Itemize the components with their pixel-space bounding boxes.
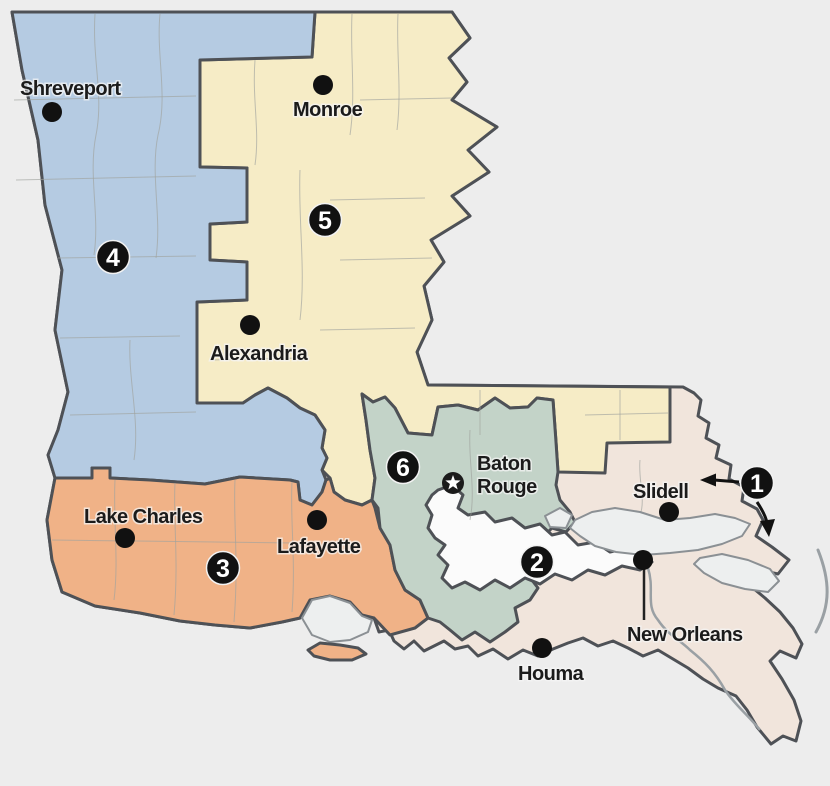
slidell-dot (659, 502, 679, 522)
district-1-arrow-left-line (714, 480, 739, 482)
houma-dot (532, 638, 552, 658)
lafayette-label: Lafayette (277, 536, 361, 558)
lake-charles-dot (115, 528, 135, 548)
shreveport-dot (42, 102, 62, 122)
new-orleans-dot (633, 550, 653, 570)
baton-rouge-label-line1: Baton (477, 453, 531, 475)
new-orleans-label: New Orleans (627, 624, 743, 646)
baton-rouge-label-line2: Rouge (477, 476, 537, 498)
alexandria-label: Alexandria (210, 343, 309, 365)
lafayette-dot (307, 510, 327, 530)
houma-label: Houma (518, 663, 585, 685)
svg-text:3: 3 (216, 555, 230, 583)
svg-text:6: 6 (396, 454, 410, 482)
svg-text:1: 1 (750, 470, 764, 498)
map-canvas: Shreveport Monroe Alexandria Lake Charle… (0, 0, 830, 786)
louisiana-district-map: Shreveport Monroe Alexandria Lake Charle… (0, 0, 830, 786)
monroe-label: Monroe (293, 99, 363, 121)
svg-text:5: 5 (318, 207, 332, 235)
monroe-dot (313, 75, 333, 95)
svg-text:4: 4 (106, 244, 120, 272)
slidell-label: Slidell (633, 481, 688, 503)
alexandria-dot (240, 315, 260, 335)
lake-charles-label: Lake Charles (84, 506, 203, 528)
svg-text:2: 2 (530, 549, 544, 577)
shreveport-label: Shreveport (20, 78, 121, 100)
